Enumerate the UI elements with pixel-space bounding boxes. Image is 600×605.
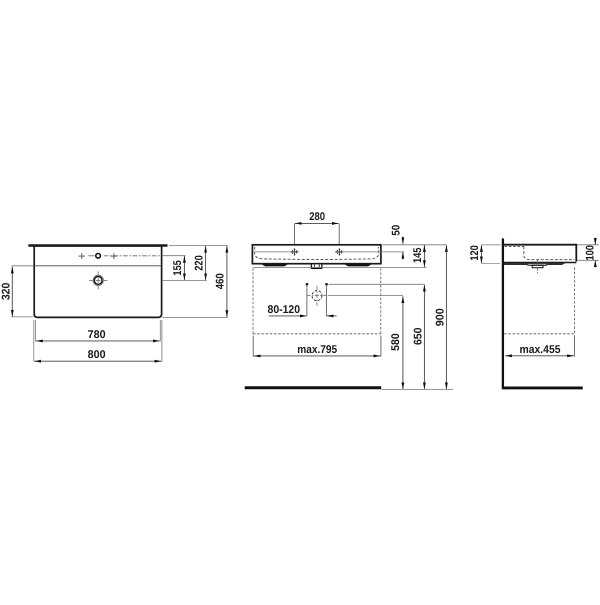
svg-text:900: 900 — [435, 308, 447, 326]
svg-text:220: 220 — [193, 255, 205, 271]
svg-text:145: 145 — [412, 248, 424, 263]
svg-text:max.795: max.795 — [297, 344, 337, 356]
svg-text:780: 780 — [88, 329, 106, 341]
svg-text:120: 120 — [469, 245, 481, 261]
svg-text:100: 100 — [584, 245, 596, 260]
svg-text:80-120: 80-120 — [268, 304, 301, 316]
svg-text:800: 800 — [88, 349, 106, 361]
svg-text:460: 460 — [215, 273, 227, 289]
svg-text:320: 320 — [0, 283, 12, 301]
svg-text:280: 280 — [309, 211, 325, 223]
svg-text:155: 155 — [172, 260, 184, 276]
svg-text:580: 580 — [390, 333, 402, 351]
svg-text:50: 50 — [391, 225, 403, 236]
svg-text:650: 650 — [413, 328, 425, 346]
svg-text:max.455: max.455 — [520, 344, 561, 356]
